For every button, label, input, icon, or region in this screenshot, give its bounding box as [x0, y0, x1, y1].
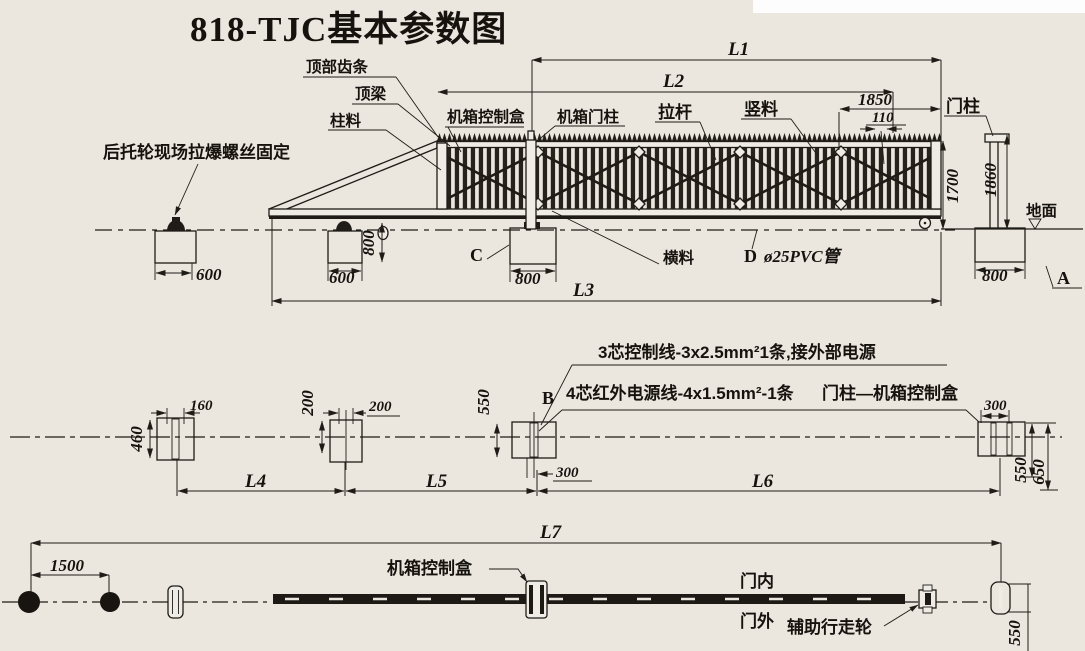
machine-door-post: [526, 140, 536, 229]
dim-200-h: 200: [368, 399, 392, 415]
post-to-box-note: 门柱—机箱控制盒: [822, 383, 959, 403]
machine-post-label: 机箱门柱: [557, 107, 620, 126]
top-rack: [437, 133, 941, 141]
door-post-section: [991, 582, 1010, 614]
cross-rail-label: 横料: [663, 248, 695, 267]
dim-L4: L4: [244, 471, 266, 492]
control-line-note: 3芯控制线-3x2.5mm²1条,接外部电源: [598, 342, 876, 362]
dim-550-right-plan: 550: [1011, 457, 1030, 483]
infrared-line-note: 4芯红外电源线-4x1.5mm²-1条: [566, 383, 795, 403]
plan-length-dims: L4 L5 L6: [177, 458, 1000, 496]
column-stock-label: 柱料: [330, 111, 362, 130]
dim-L5: L5: [425, 471, 448, 492]
bottom-rail-bar: [269, 216, 941, 219]
dim-300-right: 300: [983, 398, 1007, 414]
rear-post-section: [168, 586, 183, 618]
ground-symbol: [1029, 219, 1041, 229]
aux-wheel-leader: [884, 605, 918, 626]
dim-1700: 1700: [943, 169, 962, 204]
rear-wheel-bracket: [172, 217, 180, 223]
dim-550-bottom: 550: [1005, 620, 1024, 646]
dim-L2: L2: [662, 71, 685, 92]
door-inside-label: 门内: [740, 571, 774, 591]
dim-600-left: 600: [196, 265, 222, 284]
parameter-diagram: 818-TJC基本参数图: [0, 0, 1085, 651]
dim-110: 110: [872, 110, 894, 126]
foundation-plan-view: 460 160 200 200 550 300: [10, 342, 1062, 496]
marker-D: D: [744, 246, 757, 266]
drawing-sheet: 818-TJC基本参数图: [0, 0, 1085, 651]
aux-wheel-label: 辅助行走轮: [787, 617, 872, 637]
mid-wheel: [336, 221, 352, 231]
trolley-wheel: [378, 227, 388, 240]
control-box-plan-label: 机箱控制盒: [387, 558, 473, 578]
aux-wheel: [919, 585, 936, 613]
dim-L3: L3: [572, 280, 594, 301]
top-beam-label: 顶梁: [355, 84, 387, 103]
dim-800-right: 800: [982, 266, 1008, 285]
dim-L7: L7: [539, 522, 563, 543]
dim-1500: 1500: [50, 556, 85, 575]
gate-right-post: [931, 141, 941, 209]
marker-C: C: [470, 245, 483, 265]
track-rail: [273, 594, 905, 604]
dim-L1: L1: [727, 39, 749, 60]
dim-800-depth: 800: [359, 230, 378, 256]
door-outside-label: 门外: [740, 611, 774, 631]
dim-300-mid: 300: [555, 465, 579, 481]
anchor-dot-1: [18, 591, 40, 613]
page-title: 818-TJC基本参数图: [190, 10, 507, 49]
scan-white-band: [753, 0, 1085, 13]
elevation-view: 地面 L1 L2 1850 110 1700 1860 L: [95, 39, 1083, 306]
marker-B: B: [542, 388, 554, 408]
pull-rod-label: 拉杆: [658, 102, 692, 122]
foundation-blocks: [155, 228, 1025, 264]
ground-label: 地面: [1026, 201, 1057, 220]
gate-left-post: [437, 143, 447, 209]
rear-wheel-note: 后托轮现场拉爆螺丝固定: [103, 142, 290, 162]
dim-460: 460: [127, 426, 146, 453]
dim-1860: 1860: [981, 163, 1000, 198]
top-beam: [437, 142, 941, 148]
vertical-stock-label: 竖料: [744, 99, 778, 119]
door-post-label: 门柱: [946, 96, 980, 116]
guide-wheel-hub: [924, 222, 927, 225]
dim-800-c: 800: [515, 269, 541, 288]
anchor-dot-2: [100, 592, 120, 612]
control-box-plan: [526, 581, 547, 618]
plan-foundation-1: 460 160: [127, 398, 213, 460]
dim-1850: 1850: [858, 90, 893, 109]
control-box-label: 机箱控制盒: [447, 107, 525, 126]
plan-notes: 3芯控制线-3x2.5mm²1条,接外部电源 4芯红外电源线-4x1.5mm²-…: [539, 342, 979, 431]
control-box-leader: [489, 569, 527, 582]
dim-160: 160: [190, 398, 213, 414]
dim-200-v: 200: [298, 390, 317, 417]
dim-650: 650: [1029, 459, 1048, 485]
marker-A: A: [1057, 268, 1070, 288]
dim-550: 550: [474, 389, 493, 415]
dim-600-mid: 600: [329, 268, 355, 287]
pvc-pipe-label: ø25PVC管: [763, 247, 843, 266]
track-plan-view: L7 1500 机箱控制盒 门内 门外 辅助行走轮: [2, 522, 1031, 651]
top-rack-label: 顶部齿条: [306, 57, 369, 76]
dim-L6: L6: [751, 471, 774, 492]
tail-beam: [269, 141, 437, 215]
plan-foundation-2: 200 200: [298, 390, 400, 470]
plan-foundation-4: 300 550 650: [978, 398, 1058, 490]
